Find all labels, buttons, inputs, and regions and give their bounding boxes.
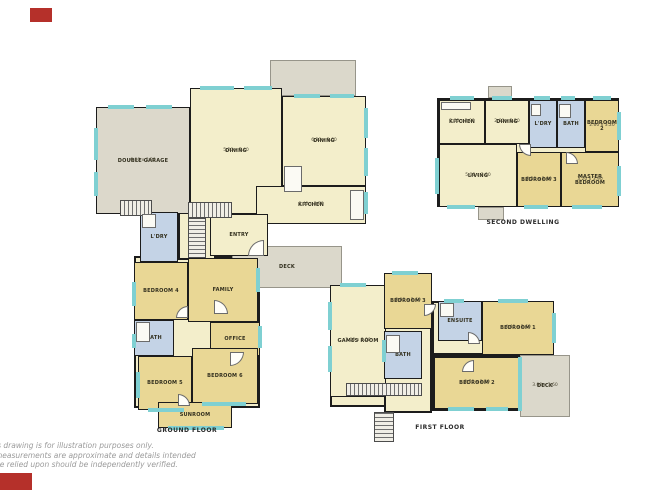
window-segment: [146, 105, 172, 109]
window-segment: [294, 94, 320, 98]
window-segment: [256, 268, 260, 292]
room-dimensions: 3.00 x 8.00: [345, 339, 371, 344]
window-segment: [518, 357, 522, 411]
room-label: BEDROOM 5: [145, 380, 185, 386]
window-segment: [328, 302, 332, 330]
room-dimensions: 2.60 x 2.90: [449, 120, 475, 125]
room-bedroom-3: BEDROOM 33.20 x 3.00: [517, 152, 561, 207]
window-segment: [561, 96, 575, 100]
disclaimer-line: measurements are approximate and details…: [0, 451, 196, 461]
room-dimensions: 2.60 x 2.20: [494, 120, 520, 125]
second-dwelling-caption: SECOND DWELLING: [455, 219, 591, 226]
window-segment: [364, 192, 368, 214]
fixture: [559, 104, 571, 118]
fixture: [386, 335, 400, 353]
window-segment: [572, 205, 602, 209]
window-segment: [258, 326, 262, 348]
room-deck: [270, 60, 356, 96]
room-dimensions: 5.20 x 7.40: [223, 149, 249, 154]
fixture: [284, 166, 302, 192]
room-living: LIVING5.00 x 3.90: [439, 144, 517, 207]
window-segment: [364, 148, 368, 176]
window-segment: [450, 96, 474, 100]
window-segment: [132, 282, 136, 306]
first-floor-caption: FIRST FLOOR: [380, 424, 500, 431]
disclaimer-line: be relied upon should be independently v…: [0, 460, 196, 470]
window-segment: [340, 283, 366, 287]
fixture: [350, 190, 364, 220]
window-segment: [392, 271, 418, 275]
room-bedroom-2: BEDROOM 23.70 x 3.20: [434, 357, 520, 409]
window-segment: [486, 407, 508, 411]
room-dimensions: 3.70 x 3.20: [464, 381, 490, 386]
window-segment: [94, 172, 98, 196]
window-segment: [617, 166, 621, 196]
fixture: [440, 303, 454, 317]
room-bedroom-3: BEDROOM 33.00 x 3.60: [384, 273, 432, 329]
window-segment: [94, 128, 98, 160]
room-double-garage: DOUBLE GARAGE6.00 x 8.20: [96, 107, 190, 214]
room-label: OFFICE: [222, 336, 247, 342]
room-dimensions: 6.30 x 3.60: [311, 139, 337, 144]
room-games-room: GAMES ROOM3.00 x 8.00: [330, 285, 386, 397]
window-segment: [202, 402, 246, 406]
room-bedroom-1: BEDROOM 14.40 x 3.60: [482, 301, 554, 355]
room-dimensions: 5.00 x 3.90: [465, 174, 491, 179]
window-segment: [552, 313, 556, 343]
ground-floor-caption: GROUND FLOOR: [127, 427, 247, 434]
fixture: [136, 322, 150, 342]
room-label: ENSUITE: [445, 318, 474, 324]
room-dimensions: 6.00 x 8.20: [130, 159, 156, 164]
window-segment: [498, 299, 528, 303]
stairs: [188, 202, 232, 218]
room-label: SUNROOM: [178, 412, 213, 418]
room-label: BATH: [561, 121, 581, 127]
room-bedroom-6: BEDROOM 6: [192, 348, 258, 404]
room-dimensions: 3.20 x 3.00: [526, 178, 552, 183]
stairs: [188, 218, 206, 258]
disclaimer-text: is drawing is for illustration purposes …: [0, 441, 196, 470]
brand-logo-mark-top: [30, 8, 52, 22]
window-segment: [136, 372, 140, 398]
room-label: L'DRY: [148, 234, 169, 240]
fixture: [441, 102, 471, 110]
window-segment: [593, 96, 611, 100]
floorplan-image: DECKDOUBLE GARAGE6.00 x 8.20DINING5.20 x…: [0, 0, 658, 493]
room-dimensions: 3.00 x 3.60: [532, 384, 558, 389]
window-segment: [448, 407, 474, 411]
stairs: [346, 383, 422, 396]
room-dimensions: 4.40 x 3.60: [505, 326, 531, 331]
fixture: [142, 214, 156, 228]
window-segment: [328, 346, 332, 372]
window-segment: [244, 86, 272, 90]
window-segment: [200, 86, 234, 90]
window-segment: [330, 94, 354, 98]
window-segment: [492, 96, 512, 100]
room-dimensions: 2.60 x 3.20: [589, 124, 615, 129]
room-label: L'DRY: [532, 121, 553, 127]
window-segment: [364, 108, 368, 138]
fixture: [531, 104, 541, 116]
room-dining: DINING2.60 x 2.20: [485, 100, 529, 144]
room-label: ENTRY: [227, 232, 250, 238]
window-segment: [108, 105, 134, 109]
room-dimensions: 6.40 x 3.70: [298, 203, 324, 208]
room-bedroom-2: BEDROOM 22.60 x 3.20: [585, 100, 619, 152]
window-segment: [447, 205, 475, 209]
room-label: BEDROOM 4: [141, 288, 181, 294]
room-label: FAMILY: [211, 287, 236, 293]
window-segment: [524, 205, 548, 209]
room-label: BEDROOM 6: [205, 373, 245, 379]
window-segment: [534, 96, 550, 100]
room-deck: DECK3.00 x 3.60: [520, 355, 570, 417]
room-label: DECK: [277, 264, 297, 270]
room-dimensions: 3.00 x 3.60: [395, 299, 421, 304]
room-dimensions: 3.20 x 3.90: [577, 178, 603, 183]
disclaimer-line: is drawing is for illustration purposes …: [0, 441, 196, 451]
brand-logo-mark-bottom: [0, 473, 32, 490]
window-segment: [617, 112, 621, 140]
window-segment: [435, 158, 439, 194]
window-segment: [148, 408, 184, 412]
